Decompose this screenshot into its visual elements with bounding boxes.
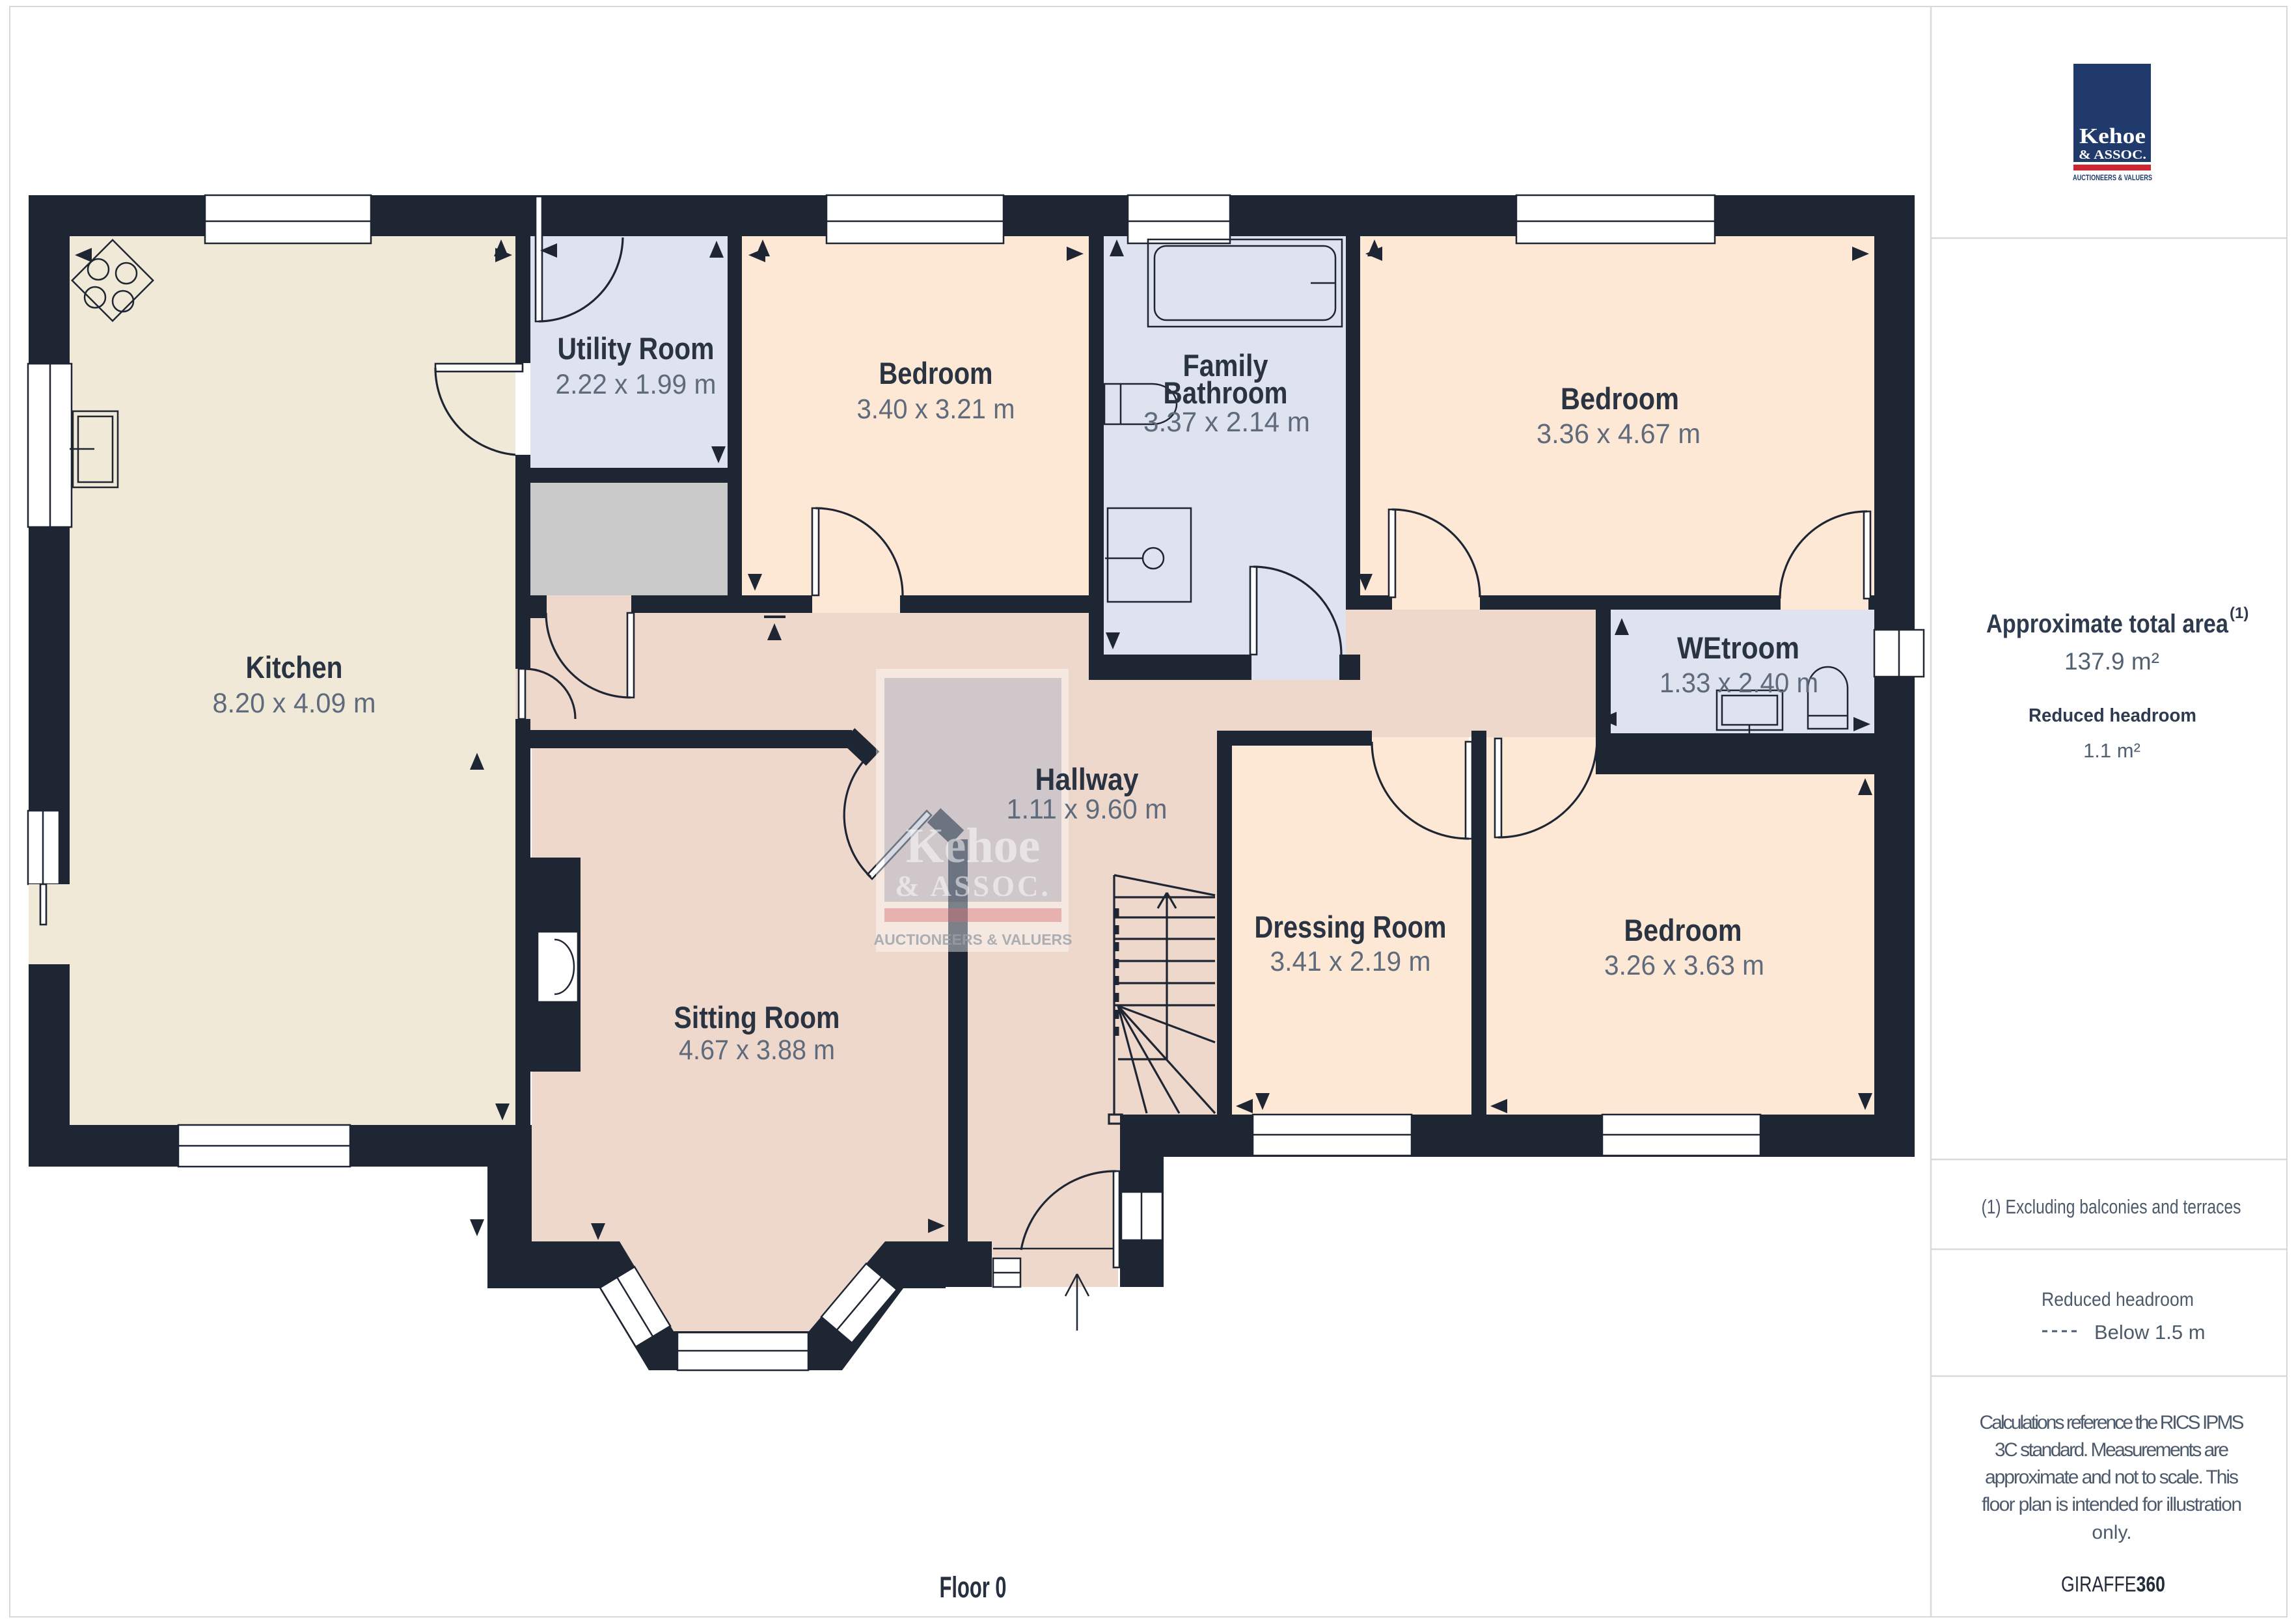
- svg-text:Bedroom: Bedroom: [1561, 381, 1679, 416]
- svg-text:3.37 x 2.14 m: 3.37 x 2.14 m: [1143, 407, 1310, 438]
- svg-text:only.: only.: [2092, 1522, 2131, 1543]
- svg-text:& ASSOC.: & ASSOC.: [895, 870, 1051, 902]
- svg-text:3.26 x 3.63 m: 3.26 x 3.63 m: [1604, 950, 1764, 981]
- svg-text:Below 1.5 m: Below 1.5 m: [2094, 1321, 2206, 1344]
- svg-text:3C standard. Measurements are: 3C standard. Measurements are: [1995, 1439, 2229, 1461]
- svg-text:Kitchen: Kitchen: [246, 650, 343, 684]
- svg-text:Bedroom: Bedroom: [1624, 913, 1742, 947]
- svg-text:AUCTIONEERS & VALUERS: AUCTIONEERS & VALUERS: [874, 931, 1073, 948]
- svg-text:3.40 x 3.21 m: 3.40 x 3.21 m: [857, 394, 1015, 425]
- svg-text:Hallway: Hallway: [1035, 762, 1139, 796]
- svg-text:GIRAFFE360: GIRAFFE360: [2061, 1572, 2165, 1596]
- svg-text:WEtroom: WEtroom: [1677, 630, 1799, 665]
- svg-text:(1): (1): [2230, 604, 2248, 622]
- svg-text:Approximate total area: Approximate total area: [1986, 610, 2229, 638]
- svg-text:Reduced headroom: Reduced headroom: [2029, 705, 2196, 726]
- svg-text:Floor 0: Floor 0: [940, 1571, 1007, 1604]
- svg-text:3.41 x 2.19 m: 3.41 x 2.19 m: [1270, 946, 1431, 977]
- svg-text:1.11 x 9.60 m: 1.11 x 9.60 m: [1007, 794, 1168, 825]
- svg-text:1.1 m²: 1.1 m²: [2083, 739, 2140, 762]
- svg-text:3.36 x 4.67 m: 3.36 x 4.67 m: [1537, 418, 1701, 450]
- svg-text:approximate and not to scale.: approximate and not to scale. This: [1985, 1467, 2239, 1488]
- svg-text:floor plan is intended for ill: floor plan is intended for illustration: [1982, 1494, 2242, 1515]
- svg-text:(1) Excluding balconies and te: (1) Excluding balconies and terraces: [1982, 1195, 2241, 1218]
- svg-text:Utility Room: Utility Room: [558, 331, 715, 366]
- svg-text:4.67 x 3.88 m: 4.67 x 3.88 m: [679, 1035, 835, 1066]
- svg-text:1.33 x 2.40 m: 1.33 x 2.40 m: [1660, 668, 1818, 699]
- svg-text:Bedroom: Bedroom: [879, 356, 993, 390]
- svg-text:Kehoe: Kehoe: [906, 819, 1041, 873]
- svg-text:2.22 x 1.99 m: 2.22 x 1.99 m: [556, 369, 717, 400]
- svg-text:AUCTIONEERS & VALUERS: AUCTIONEERS & VALUERS: [2073, 173, 2152, 182]
- svg-text:Reduced headroom: Reduced headroom: [2042, 1289, 2194, 1310]
- svg-text:Dressing Room: Dressing Room: [1255, 910, 1447, 944]
- svg-text:Kehoe: Kehoe: [2079, 124, 2146, 148]
- svg-text:& ASSOC.: & ASSOC.: [2079, 148, 2146, 162]
- svg-text:137.9 m²: 137.9 m²: [2064, 648, 2159, 675]
- svg-text:Sitting Room: Sitting Room: [674, 1000, 840, 1035]
- svg-text:8.20 x 4.09 m: 8.20 x 4.09 m: [213, 688, 376, 719]
- svg-text:Bathroom: Bathroom: [1164, 375, 1288, 410]
- svg-text:Calculations reference the RIC: Calculations reference the RICS IPMS: [1980, 1412, 2245, 1433]
